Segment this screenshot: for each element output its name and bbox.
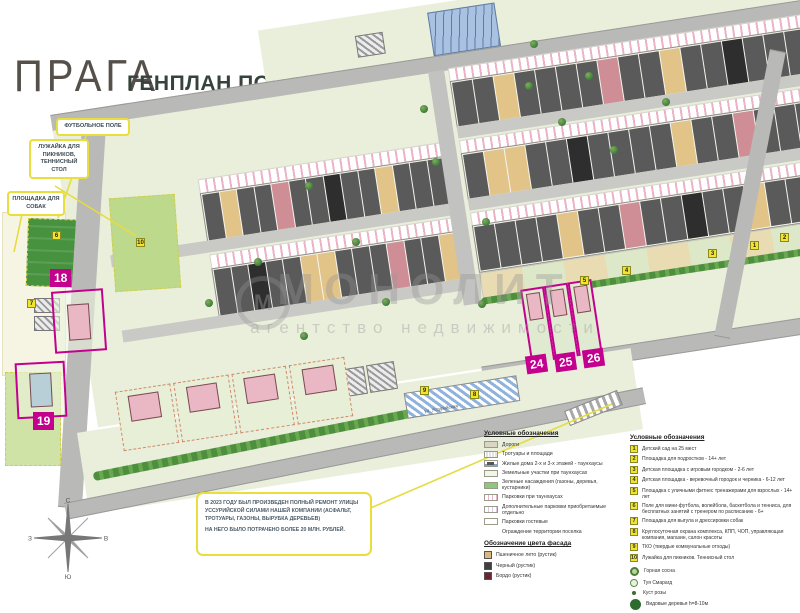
legend-item-label: Тротуары и площади	[502, 451, 553, 457]
legend-item: Тротуары и площади	[484, 451, 622, 458]
house	[127, 391, 162, 422]
house	[573, 285, 592, 314]
highlighted-plot-19	[15, 361, 68, 420]
amenity-number-badge: 5	[630, 487, 638, 495]
parking-guest-swatch-icon	[484, 518, 498, 525]
plant-label: Куст розы	[643, 590, 666, 596]
tree-icon	[382, 298, 390, 306]
tree-icon	[662, 98, 670, 106]
plant-label: Видовые деревья h=8-10м	[646, 601, 708, 607]
amenity-label: Площадка для выгула и дрессировки собак	[642, 517, 743, 524]
amenity-item: 6Поле для мини-футбола, волейбола, баске…	[630, 502, 796, 515]
tree-icon	[305, 182, 313, 190]
amenity-number-badge: 2	[630, 455, 638, 463]
tree-icon	[432, 158, 440, 166]
hatch	[355, 32, 386, 58]
map-marker-5: 5	[580, 276, 589, 285]
legend-item: Дополнительные парковки приобретаемые от…	[484, 504, 622, 516]
parking-extra-swatch-icon	[484, 506, 498, 513]
tree-icon	[525, 82, 533, 90]
legend-item-label: Земельные участки при таунхаусах	[502, 470, 587, 476]
facade-color-swatch-icon	[484, 551, 492, 559]
facade-color-swatch-icon	[484, 572, 492, 580]
compass-w: З	[28, 536, 32, 543]
house	[549, 288, 568, 317]
map-marker-10: 10	[136, 238, 145, 247]
picnic-lawn	[109, 194, 181, 292]
compass-rose: С В Ю З	[26, 496, 110, 580]
plot-number-label: 24	[525, 354, 549, 375]
compass-n: С	[66, 498, 71, 505]
map-marker-8: 8	[470, 390, 479, 399]
legend-item-label: Жилые дома 2-х и 3-х этажей - таунхаусы	[502, 461, 603, 467]
legend-item-label: Дополнительные парковки приобретаемые от…	[502, 504, 622, 516]
amenity-label: Лужайка для пикников. Теннисный стол	[642, 554, 734, 561]
tall-icon	[630, 599, 641, 610]
facade-color-item: Пшеничное лето (рустик)	[484, 551, 622, 559]
amenity-number-badge: 1	[630, 445, 638, 453]
house	[29, 372, 53, 407]
map-marker-2: 2	[780, 233, 789, 242]
house	[185, 382, 220, 413]
plant-label: Туя Смарагд	[643, 580, 672, 586]
house	[525, 292, 544, 321]
plant-item: Туя Смарагд	[630, 579, 796, 587]
legend-map-symbols: Условные обозначения ДорогиТротуары и пл…	[484, 430, 622, 583]
facade-color-label: Пшеничное лето (рустик)	[496, 552, 557, 558]
tree-icon	[205, 299, 213, 307]
tree-icon	[300, 332, 308, 340]
plot-cell	[289, 357, 353, 425]
legend-item: Парковки при таунхаусах	[484, 494, 622, 501]
highlighted-plot-18	[51, 288, 107, 353]
amenity-label: Детская площадка - веревочный городок и …	[642, 476, 785, 483]
map-marker-1: 1	[750, 241, 759, 250]
amenity-number-badge: 6	[630, 502, 638, 510]
tree-icon	[585, 72, 593, 80]
facade-color-item: Черный (рустик)	[484, 562, 622, 570]
thuja-icon	[630, 579, 638, 587]
amenity-number-badge: 3	[630, 466, 638, 474]
plot-number-label: 25	[554, 352, 578, 373]
tree-icon	[482, 218, 490, 226]
callout-football: ФУТБОЛЬНОЕ ПОЛЕ	[56, 118, 130, 136]
legend-item: Жилые дома 2-х и 3-х этажей - таунхаусы	[484, 460, 622, 467]
amenity-label: Площадка для подростков - 14+ лет	[642, 455, 726, 462]
amenity-number-badge: 9	[630, 543, 638, 551]
facade-color-swatch-icon	[484, 562, 492, 570]
plot-number-label: 26	[582, 348, 606, 369]
amenity-label: Круглосуточная охрана комплекса, КПП, ЧО…	[642, 528, 796, 541]
tree-icon	[420, 105, 428, 113]
townhouse-swatch-icon	[484, 460, 498, 467]
sidewalk-swatch-icon	[484, 451, 498, 458]
amenity-label: Детская площадка с игровым городком - 2-…	[642, 466, 754, 473]
amenity-number-badge: 8	[630, 528, 638, 536]
green-swatch-icon	[484, 482, 498, 489]
plant-label: Горная сосна	[644, 568, 675, 574]
plot-cell	[115, 383, 179, 451]
pine-icon	[630, 567, 639, 576]
plant-item: Видовые деревья h=8-10м	[630, 599, 796, 610]
compass-e: В	[104, 536, 108, 543]
tree-icon	[558, 118, 566, 126]
compass-s: Ю	[65, 574, 72, 580]
facade-legend-title: Обозначение цвета фасада	[484, 540, 622, 547]
tree-icon	[254, 258, 262, 266]
plot-number-label: 19	[33, 412, 54, 430]
rose-icon	[632, 591, 636, 595]
amenity-item: 7Площадка для выгула и дрессировки собак	[630, 517, 796, 525]
house	[301, 364, 336, 395]
facade-color-label: Черный (рустик)	[496, 563, 535, 569]
plot-swatch-icon	[484, 470, 498, 477]
legend-title: Условные обозначения	[630, 434, 796, 441]
garage-building	[366, 361, 398, 393]
tree-icon	[610, 146, 618, 154]
legend-amenities: Условные обозначения 1Детский сад на 25 …	[630, 434, 796, 613]
legend-item-label: Дороги	[502, 442, 519, 448]
renovation-note: В 2023 ГОДУ БЫЛ ПРОИЗВЕДЕН ПОЛНЫЙ РЕМОНТ…	[196, 492, 372, 556]
road-swatch-icon	[484, 441, 498, 448]
legend-item-label: Зеленые насаждения (газоны, деревья, кус…	[502, 479, 622, 491]
watermark-emblem: М	[236, 276, 290, 330]
tree-icon	[530, 40, 538, 48]
legend-item: Зеленые насаждения (газоны, деревья, кус…	[484, 479, 622, 491]
amenity-label: ТКО (твердые коммунальные отходы)	[642, 543, 730, 550]
amenity-item: 9ТКО (твердые коммунальные отходы)	[630, 543, 796, 551]
tree-icon	[478, 300, 486, 308]
house	[243, 373, 278, 404]
tree-icon	[352, 238, 360, 246]
amenity-label: Площадка с уличными фитнес тренажерами д…	[642, 487, 796, 500]
map-marker-3: 3	[708, 249, 717, 258]
amenity-number-badge: 4	[630, 476, 638, 484]
amenity-item: 8Круглосуточная охрана комплекса, КПП, Ч…	[630, 528, 796, 541]
plot-cell	[231, 366, 295, 434]
amenity-label: Поле для мини-футбола, волейбола, баскет…	[642, 502, 796, 515]
parking-swatch-icon	[484, 494, 498, 501]
house	[67, 303, 91, 340]
plant-item: Куст розы	[630, 590, 796, 596]
amenity-item: 5Площадка с уличными фитнес тренажерами …	[630, 487, 796, 500]
map-marker-9: 9	[420, 386, 429, 395]
amenity-number-badge: 7	[630, 517, 638, 525]
fence-note: Ограждение территории поселка	[502, 529, 622, 535]
amenity-item: 10Лужайка для пикников. Теннисный стол	[630, 554, 796, 562]
map-marker-7: 7	[27, 299, 36, 308]
legend-item: Земельные участки при таунхаусах	[484, 470, 622, 477]
amenity-number-badge: 10	[630, 554, 638, 562]
legend-item: Дороги	[484, 441, 622, 448]
legend-item-label: Парковки при таунхаусах	[502, 494, 563, 500]
map-marker-4: 4	[622, 266, 631, 275]
amenity-item: 1Детский сад на 25 мест	[630, 445, 796, 453]
legend-item-label: Парковки гостевые	[502, 519, 548, 525]
plot-number-label: 18	[50, 269, 71, 287]
map-marker-6: 6	[52, 231, 61, 240]
callout-picnic: ЛУЖАЙКА ДЛЯ ПИКНИКОВ, ТЕННИСНЫЙ СТОЛ	[29, 139, 89, 179]
facade-color-label: Бордо (рустик)	[496, 573, 531, 579]
facade-color-item: Бордо (рустик)	[484, 572, 622, 580]
callout-dogs: ПЛОЩАДКА ДЛЯ СОБАК	[7, 191, 65, 216]
legend-item: Парковки гостевые	[484, 518, 622, 525]
amenity-item: 3Детская площадка с игровым городком - 2…	[630, 466, 796, 474]
legend-title: Условные обозначения	[484, 430, 622, 437]
plant-item: Горная сосна	[630, 567, 796, 576]
note-line: В 2023 ГОДУ БЫЛ ПРОИЗВЕДЕН ПОЛНЫЙ РЕМОНТ…	[205, 500, 363, 523]
amenity-label: Детский сад на 25 мест	[642, 445, 696, 452]
amenity-item: 2Площадка для подростков - 14+ лет	[630, 455, 796, 463]
amenity-item: 4Детская площадка - веревочный городок и…	[630, 476, 796, 484]
plot-cell	[173, 375, 237, 443]
note-line: НА НЕГО БЫЛО ПОТРАЧЕНО БОЛЕЕ 20 МЛН. РУБ…	[205, 527, 363, 535]
